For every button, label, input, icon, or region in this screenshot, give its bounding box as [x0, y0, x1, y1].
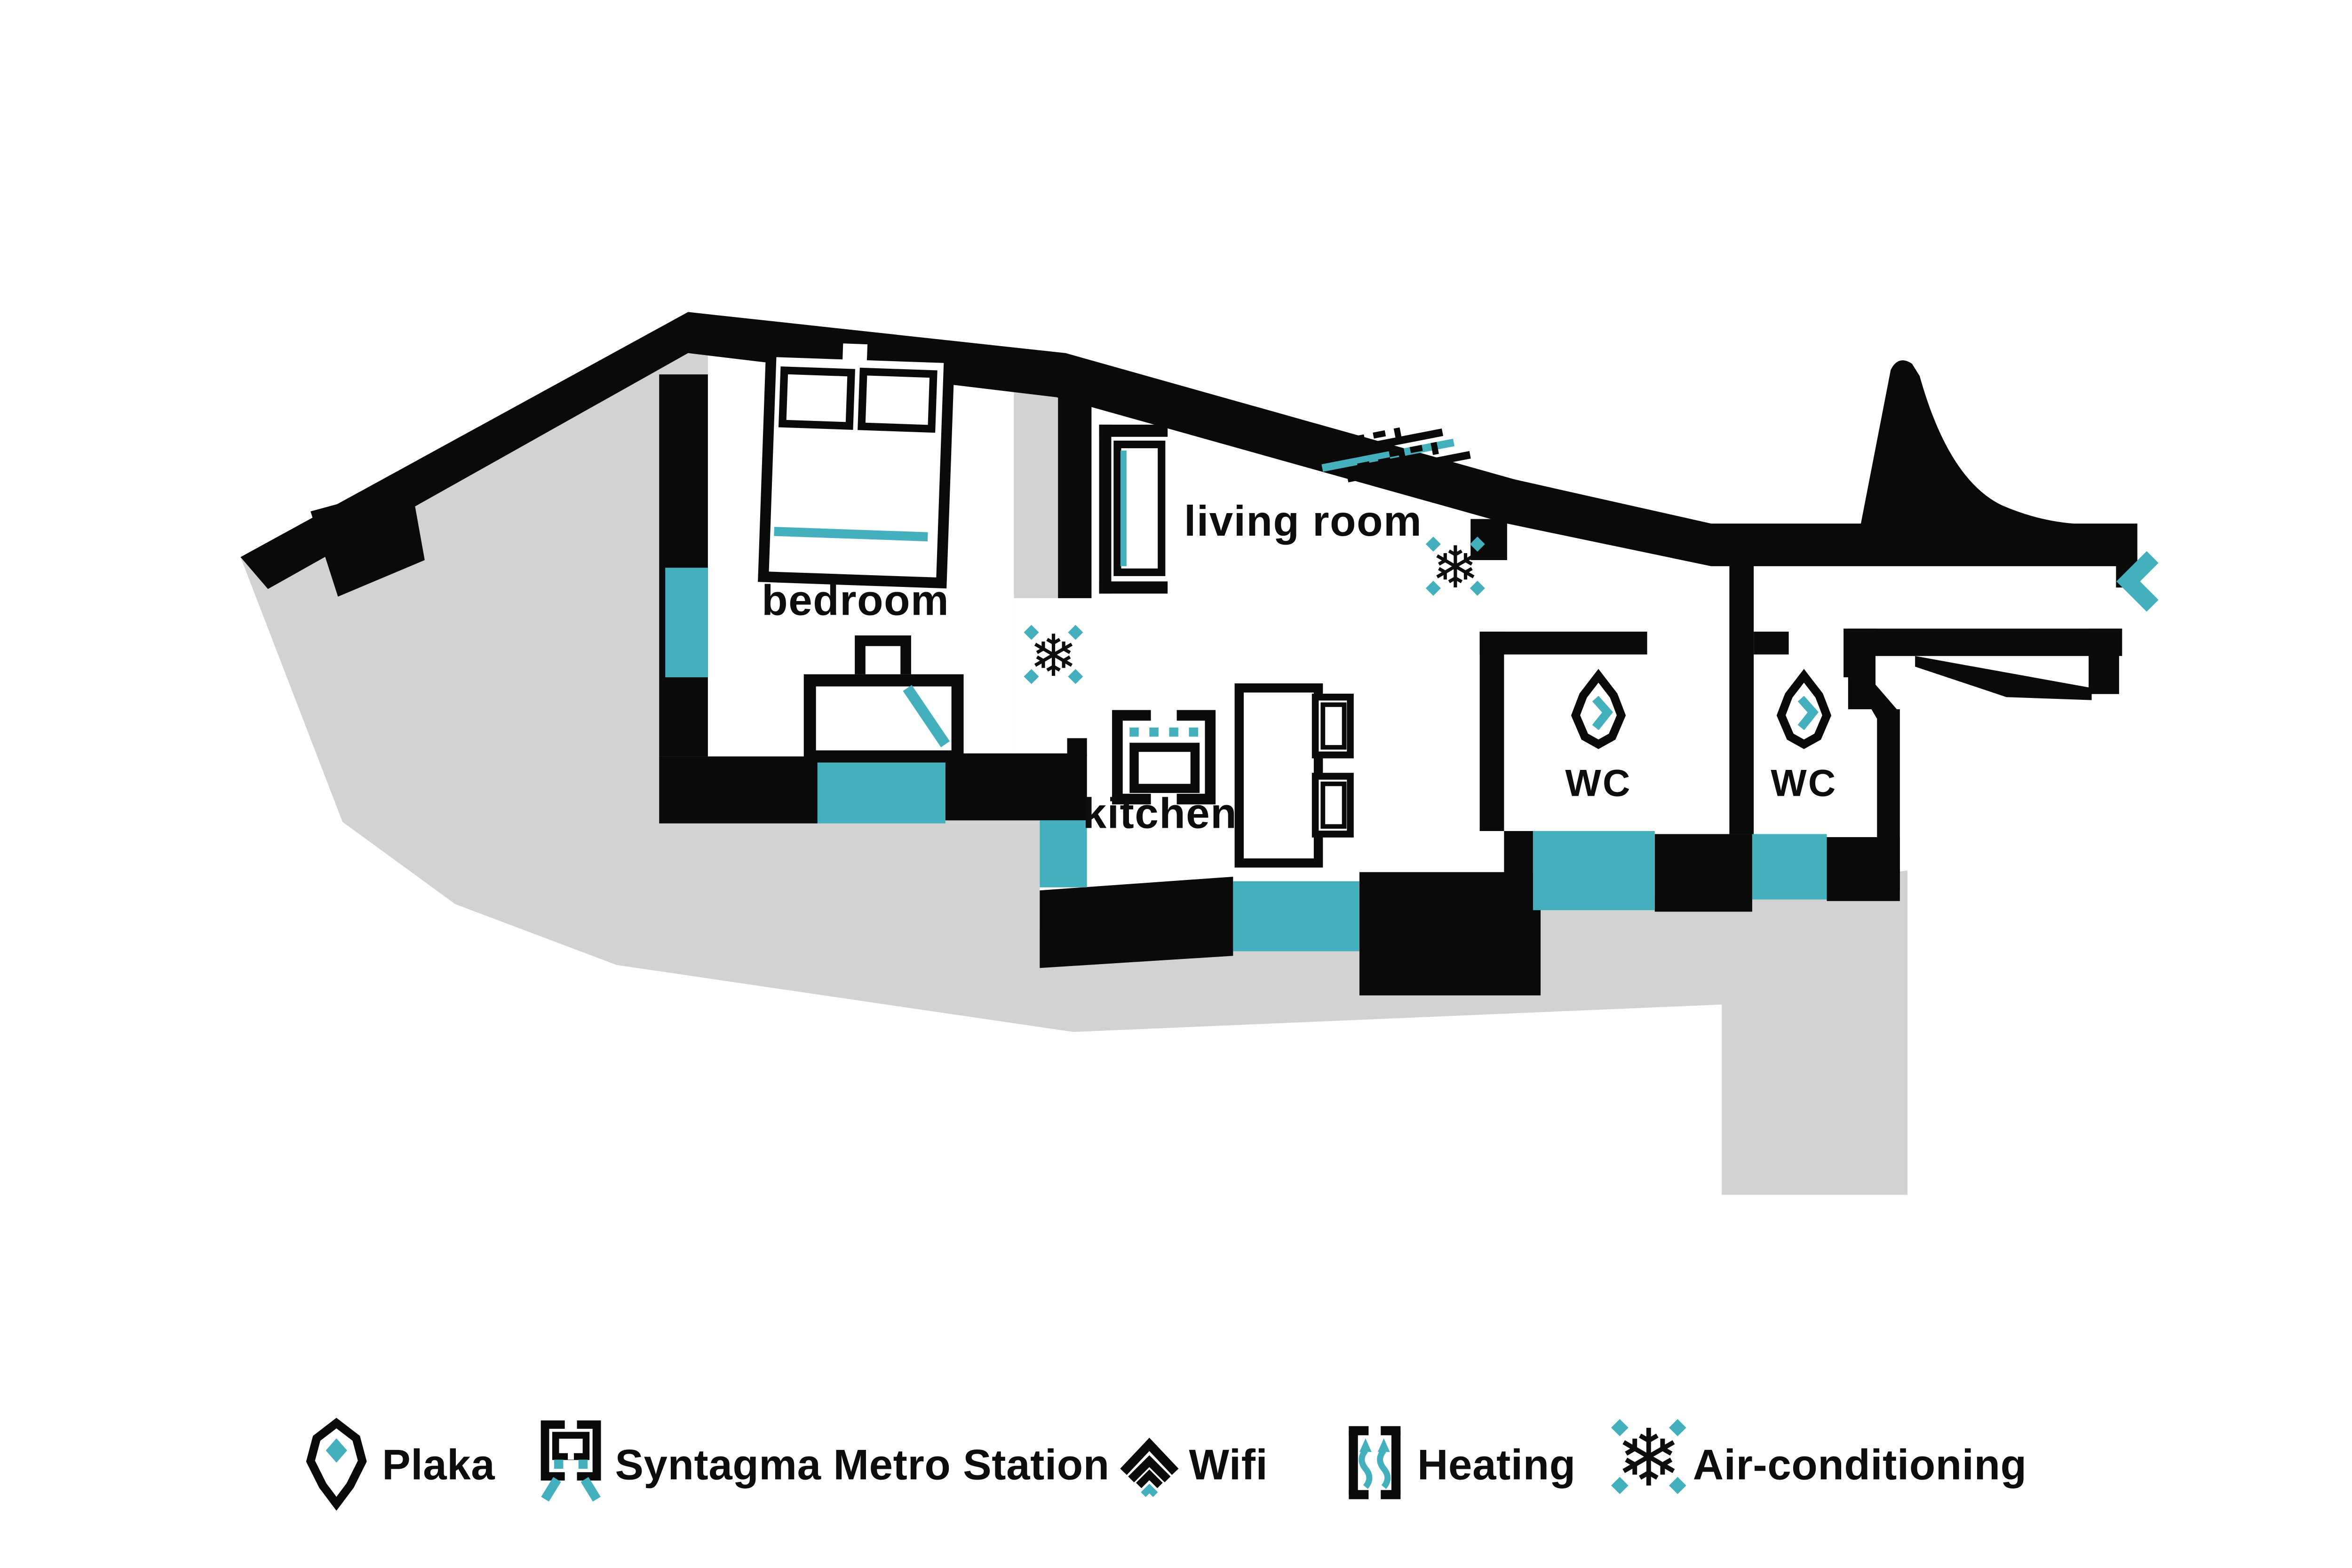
wifi-icon [1123, 1444, 1175, 1495]
wall-corridor-diag [1915, 656, 2091, 700]
window-wc2 [1752, 834, 1827, 899]
wall-bedroom-bottom-right [946, 753, 1087, 820]
chair-icon [1315, 776, 1350, 834]
wall-corridor-block-right [2089, 629, 2119, 694]
wall-wc1-top [1480, 632, 1647, 655]
window-bedroom [665, 568, 708, 677]
heating-icon [1349, 1426, 1400, 1499]
legend-label-metro: Syntagma Metro Station [615, 1441, 1109, 1489]
snowflake-icon: ❄ [1024, 623, 1083, 690]
wall-wc1-left [1480, 632, 1504, 831]
legend-item-wifi: Wifi [1123, 1441, 1268, 1495]
bed-icon [763, 341, 950, 583]
wall-horn [1860, 360, 2074, 527]
wall-wc2-top-stub [1754, 632, 1788, 655]
wall-wc-divider-foot [1655, 834, 1752, 911]
wc1-drop-icon [1576, 676, 1621, 744]
window-kitchen-left [1040, 820, 1087, 887]
legend-label-wifi: Wifi [1189, 1441, 1268, 1489]
living-room-label: living room [1184, 498, 1422, 545]
window-wc1 [1533, 831, 1655, 910]
shadow-lightwell [1014, 389, 1058, 598]
wall-kitchen-outer [1040, 877, 1233, 968]
wall-bedroom-stub [1067, 738, 1087, 757]
legend-item-plaka: Plaka [310, 1423, 495, 1504]
legend-item-metro: Syntagma Metro Station [545, 1417, 1110, 1499]
wc1-label: WC [1565, 762, 1631, 805]
legend-label-plaka: Plaka [382, 1441, 495, 1489]
door-bedroom [818, 756, 946, 823]
legend-label-heating: Heating [1417, 1441, 1576, 1489]
metro-icon [545, 1417, 597, 1499]
wall-wc2-right-foot [1827, 837, 1899, 901]
kitchen-label: kitchen [1083, 790, 1238, 838]
wall-bedroom-left [659, 374, 708, 756]
legend: Plaka Syntagma Metro Station [310, 1412, 2026, 1505]
floor-plan-page: ❄ ❄ bedroom living room kitchen WC WC Pl… [0, 0, 2352, 1568]
legend-item-air-conditioning: ❄ Air-conditioning [1611, 1412, 2027, 1505]
bedroom-label: bedroom [762, 577, 949, 624]
wall-corridor-band [1848, 629, 2122, 656]
wall-wc1-left-foot [1504, 831, 1533, 910]
wc2-label: WC [1771, 762, 1837, 805]
legend-label-air-conditioning: Air-conditioning [1693, 1441, 2027, 1489]
air-conditioning-icon: ❄ [1611, 1412, 1686, 1505]
floor-plan-canvas: ❄ ❄ bedroom living room kitchen WC WC Pl… [0, 0, 2352, 1568]
location-pin-icon [310, 1423, 362, 1504]
wall-corridor-stub-left [1848, 629, 1875, 710]
snowflake-icon: ❄ [1426, 534, 1485, 602]
sofa-icon [1099, 425, 1168, 594]
legend-item-heating: Heating [1349, 1426, 1575, 1499]
chair-icon [1315, 697, 1350, 755]
dining-table-icon [1239, 688, 1350, 863]
wall-bedroom-bottom-left [659, 756, 818, 823]
wc2-drop-icon [1781, 676, 1827, 744]
wall-lightwell-strip [1058, 389, 1091, 598]
wall-wc-divider [1729, 525, 1754, 834]
window-kitchen-bottom [1233, 881, 1359, 951]
